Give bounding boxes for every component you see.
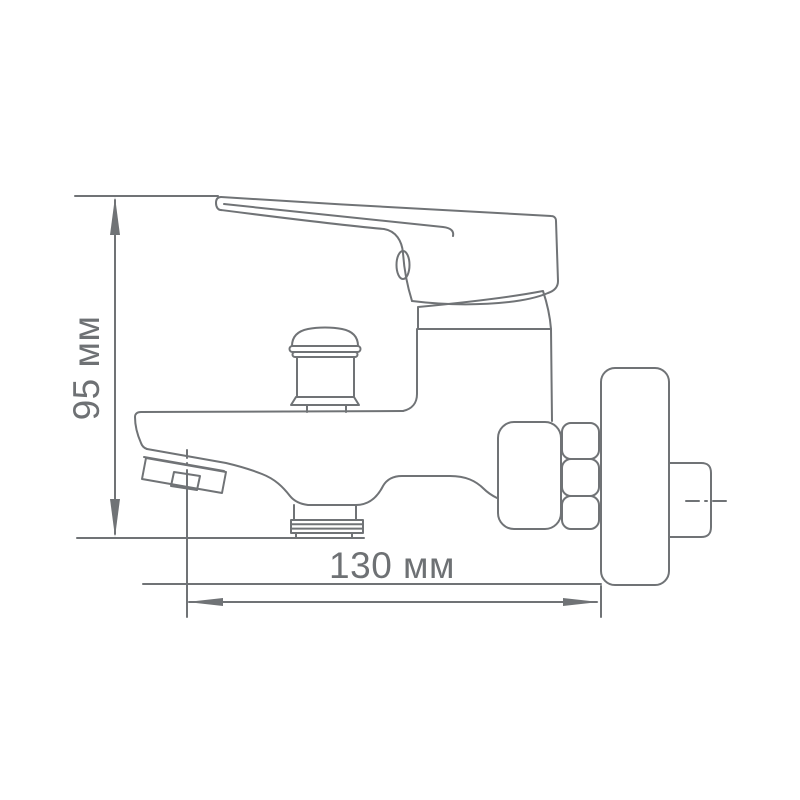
body-left-edge — [403, 329, 417, 411]
wall-connection — [498, 368, 728, 585]
cartridge-collar — [418, 291, 551, 329]
handle-tip — [216, 197, 221, 210]
faucet-diagram: 95 мм 130 мм — [0, 0, 800, 800]
spout-top-and-left-edge — [135, 411, 403, 449]
height-dimension-label: 95 мм — [66, 316, 107, 421]
knob-stem — [297, 357, 354, 397]
spout — [135, 411, 497, 505]
spout-outlet — [171, 472, 200, 490]
faucet-handle — [216, 197, 558, 304]
hex-nut-bottom-facet — [562, 496, 599, 529]
technical-drawing-canvas: 95 мм 130 мм — [0, 0, 800, 800]
height-dimension: 95 мм — [66, 196, 364, 538]
aerator-thread-block — [291, 520, 363, 533]
knob-base-flange — [291, 397, 359, 405]
arrow-down-icon — [110, 499, 120, 537]
wall-flange — [601, 368, 669, 585]
cone-nut — [498, 422, 561, 529]
faucet-drawing — [135, 197, 728, 585]
diverter-knob — [290, 328, 361, 413]
arrow-left-icon — [187, 598, 223, 606]
aerator-neck — [294, 505, 356, 520]
handle-top-outline — [221, 197, 558, 304]
faucet-body — [403, 329, 552, 421]
hex-nut-top-facet — [562, 423, 599, 459]
width-dimension-label: 130 мм — [329, 545, 455, 586]
arrow-up-icon — [110, 197, 120, 235]
body-right-edge — [551, 329, 552, 421]
collar-outline — [418, 291, 551, 329]
arrow-right-icon — [563, 598, 599, 606]
hex-nut-middle-facet — [562, 459, 599, 496]
knob-dome — [292, 328, 358, 347]
handle-front-outline — [221, 210, 412, 301]
aerator — [291, 505, 363, 538]
aerator-thread-lines — [291, 524, 363, 528]
knob-ring-lower — [293, 352, 358, 357]
